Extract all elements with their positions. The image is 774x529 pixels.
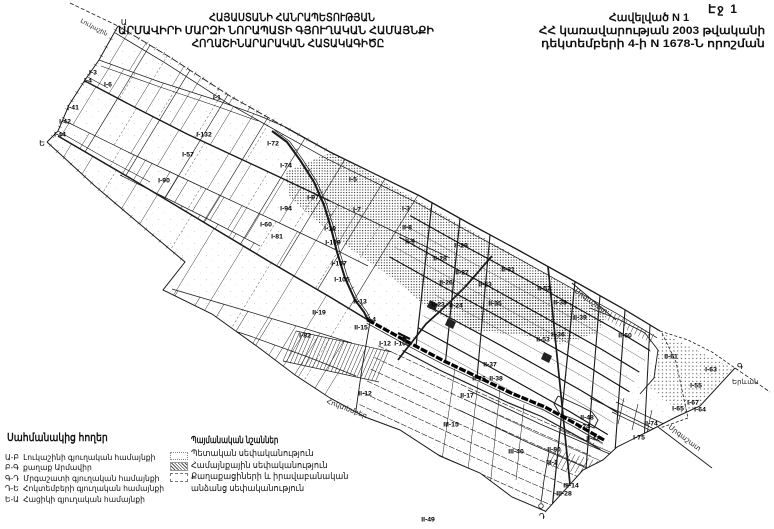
svg-text:II-39: II-39 (573, 315, 587, 322)
svg-text:I-81: I-81 (271, 234, 283, 241)
svg-text:III-14: III-14 (563, 483, 579, 490)
svg-text:II-29: II-29 (454, 243, 468, 250)
svg-text:II-53: II-53 (536, 337, 550, 344)
svg-text:II-23: II-23 (431, 302, 445, 309)
svg-text:Երևան: Երևան (732, 378, 759, 386)
svg-text:II-8: II-8 (402, 225, 412, 232)
svg-text:II-24: II-24 (449, 303, 463, 310)
svg-text:I-57: I-57 (182, 152, 194, 159)
svg-text:II-28: II-28 (433, 256, 447, 263)
svg-text:Ե: Ե (39, 139, 45, 148)
svg-text:I-60: I-60 (260, 222, 272, 229)
svg-text:II-4: II-4 (366, 317, 376, 324)
svg-text:III-28: III-28 (556, 491, 572, 498)
svg-text:I-67: I-67 (687, 400, 699, 407)
svg-text:Գ: Գ (737, 362, 743, 371)
svg-text:II-26: II-26 (472, 376, 486, 383)
svg-text:I-72: I-72 (267, 141, 279, 148)
svg-text:II-31: II-31 (501, 267, 515, 274)
svg-text:II-80: II-80 (547, 447, 561, 454)
svg-text:II-38: II-38 (489, 376, 503, 383)
svg-text:I-10: I-10 (324, 226, 336, 233)
svg-text:I-41: I-41 (67, 105, 79, 112)
svg-text:I-7: I-7 (353, 207, 361, 214)
svg-text:I-107: I-107 (331, 261, 347, 268)
svg-text:I-44: I-44 (54, 132, 66, 139)
svg-text:III-40: III-40 (508, 449, 524, 456)
svg-text:II-19: II-19 (312, 310, 326, 317)
svg-text:I-109: I-109 (325, 240, 341, 247)
svg-text:I-3: I-3 (402, 206, 410, 213)
svg-text:I-55: I-55 (690, 383, 702, 390)
svg-text:I-75: I-75 (633, 435, 645, 442)
svg-text:I-105: I-105 (334, 277, 350, 284)
svg-text:I-132: I-132 (196, 132, 212, 139)
svg-text:I-4: I-4 (84, 78, 92, 85)
svg-text:II-49: II-49 (421, 517, 435, 524)
svg-text:I-64: I-64 (694, 407, 706, 414)
svg-text:II-61: II-61 (664, 354, 678, 361)
svg-text:II-26: II-26 (439, 280, 453, 287)
svg-text:I-90: I-90 (158, 178, 170, 185)
svg-text:II-9: II-9 (405, 239, 415, 246)
svg-text:III-2: III-2 (546, 460, 558, 467)
svg-text:II-60: II-60 (618, 333, 632, 340)
svg-text:I-24: I-24 (578, 424, 590, 431)
svg-text:I-6: I-6 (104, 82, 112, 89)
svg-text:II-33: II-33 (478, 282, 492, 289)
svg-text:I-74: I-74 (280, 163, 292, 170)
svg-text:II-42: II-42 (586, 436, 600, 443)
svg-text:II-35: II-35 (488, 301, 502, 308)
svg-text:I-12: I-12 (379, 341, 391, 348)
svg-text:II-37: II-37 (483, 362, 497, 369)
svg-text:III-15: III-15 (443, 422, 459, 429)
svg-text:I-94: I-94 (280, 206, 292, 213)
svg-text:I-1: I-1 (213, 95, 221, 102)
svg-text:I-63: I-63 (705, 367, 717, 374)
svg-text:II-13: II-13 (353, 299, 367, 306)
svg-text:I-3: I-3 (89, 70, 97, 77)
svg-text:II-15: II-15 (354, 325, 368, 332)
svg-text:I-97: I-97 (307, 195, 319, 202)
svg-text:I-82: I-82 (299, 333, 311, 340)
svg-text:II-27: II-27 (455, 270, 469, 277)
svg-text:II-38: II-38 (553, 300, 567, 307)
svg-text:I-106: I-106 (394, 341, 410, 348)
svg-text:I-5: I-5 (349, 177, 357, 184)
svg-text:II-74: II-74 (644, 421, 658, 428)
svg-text:II-12: II-12 (358, 391, 372, 398)
svg-text:II-52: II-52 (537, 286, 551, 293)
svg-text:I-65: I-65 (672, 406, 684, 413)
svg-text:II-17: II-17 (460, 393, 474, 400)
svg-text:II-48: II-48 (580, 415, 594, 422)
svg-text:I-42: I-42 (59, 119, 71, 126)
svg-text:II-36: II-36 (551, 332, 565, 339)
svg-text:Դ: Դ (539, 512, 545, 521)
